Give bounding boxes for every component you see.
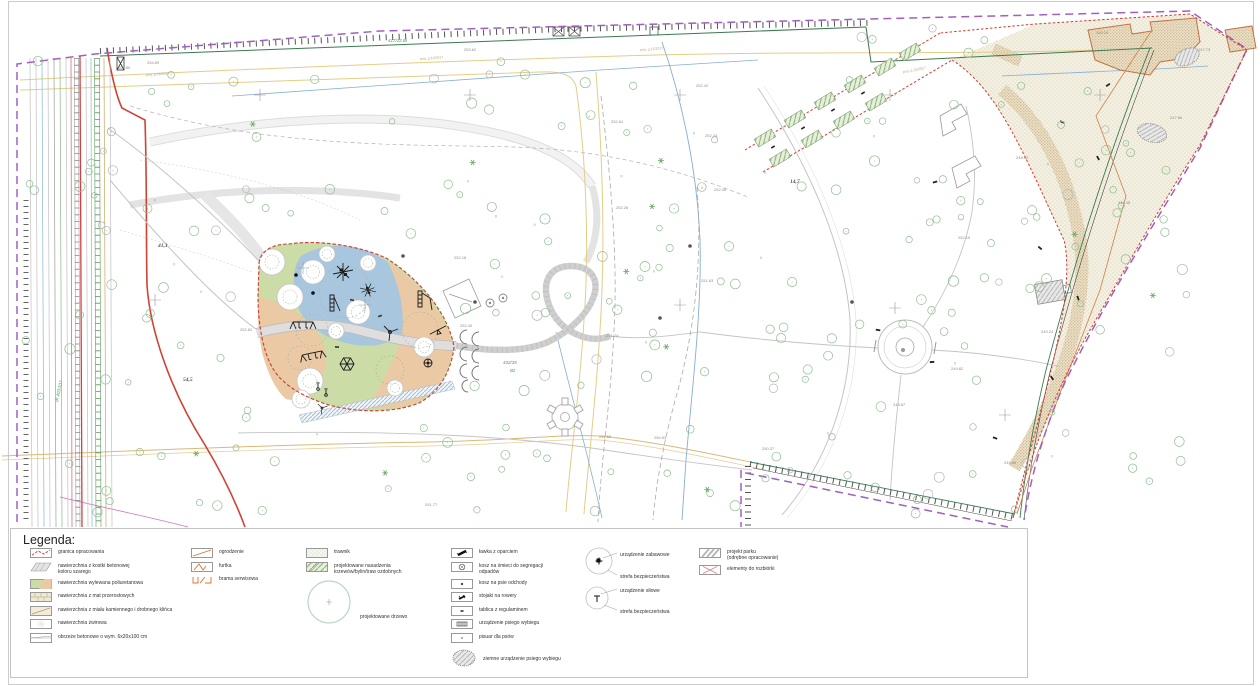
existing-wide-paths — [130, 119, 597, 262]
svg-text:II: II — [316, 431, 318, 436]
svg-text:249.86: 249.86 — [1004, 460, 1017, 465]
svg-text:II: II — [701, 185, 703, 190]
svg-text:proj. g 12/2017: proj. g 12/2017 — [420, 55, 444, 61]
svg-text:II: II — [1051, 454, 1053, 459]
svg-text:II: II — [173, 262, 175, 267]
svg-text:II: II — [200, 289, 202, 294]
svg-text:II: II — [534, 222, 536, 227]
legend-item-ground-dog-equipment: ziemne urządzenie psiego wybiegu — [451, 648, 561, 668]
svg-text:II: II — [1047, 162, 1049, 167]
svg-text:252.24: 252.24 — [705, 133, 718, 138]
svg-text:252.42: 252.42 — [696, 83, 709, 88]
svg-text:II: II — [827, 431, 829, 436]
lawn-swatch — [306, 548, 328, 558]
svg-text:251.50: 251.50 — [599, 434, 612, 439]
legend-column-misc: projekt parku(odrębne opracowanie) eleme… — [699, 548, 778, 579]
svg-text:248.82: 248.82 — [1016, 155, 1029, 160]
svg-text:417/22 Bi: 417/22 Bi — [388, 38, 408, 43]
svg-text:II: II — [501, 274, 503, 279]
legend-column-surfaces: granica opracowania nawierzchnia z kostk… — [30, 548, 172, 646]
legend-item-gate: furtka — [191, 562, 258, 572]
svg-text:250.37: 250.37 — [762, 446, 775, 451]
svg-text:proj. g 12/2017: proj. g 12/2017 — [146, 71, 170, 77]
grass-mats-swatch — [30, 592, 52, 602]
legend-item-stone-dust: nawierzchnia z miału kamiennego i drobne… — [30, 606, 172, 616]
dog-run-area — [952, 14, 1247, 518]
shrub-planting-swatch — [306, 562, 328, 572]
bench-icon — [451, 548, 473, 558]
svg-text:252.06: 252.06 — [714, 187, 727, 192]
svg-text:251.77: 251.77 — [425, 502, 438, 507]
dog-waste-bin-icon — [451, 579, 473, 589]
legend-item-dog-run-equipment: urządzenie psiego wybiegu — [451, 619, 561, 629]
legend-title: Legenda: — [23, 533, 75, 547]
plaza-monument — [547, 398, 583, 436]
svg-text:252.82: 252.82 — [240, 327, 253, 332]
svg-text:proj. g 12/2017: proj. g 12/2017 — [902, 66, 926, 74]
gray-donut-trees — [486, 294, 507, 307]
amphitheater-benches — [460, 330, 479, 392]
stone-dust-swatch — [30, 606, 52, 616]
pavers-swatch — [30, 562, 52, 572]
svg-text:54,5: 54,5 — [183, 377, 193, 383]
rules-board-icon — [451, 606, 473, 616]
legend-item-recycling-bin: kosz na śmieci do segregacjiodpadów — [451, 562, 561, 576]
svg-text:II: II — [693, 130, 695, 135]
svg-text:252.19: 252.19 — [958, 235, 971, 240]
legend-item-service-gate: brama serwisowa — [191, 575, 258, 585]
legend-column-fencing: ogrodzenie furtka brama serwisowa — [191, 548, 258, 589]
svg-text:249.87: 249.87 — [893, 402, 906, 407]
legend-item-gravel: nawierzchnia żwirowa — [30, 619, 172, 629]
svg-text:II: II — [954, 361, 956, 366]
ground-dog-equipment-icon — [451, 648, 477, 668]
svg-text:249.82: 249.82 — [951, 366, 964, 371]
play-equipment-label: urządzenie zabawowe — [620, 552, 670, 558]
gravel-swatch — [30, 619, 52, 629]
svg-text:II: II — [760, 255, 762, 260]
legend-item-dog-urinal: pisuar dla psów — [451, 633, 561, 643]
svg-text:II: II — [588, 114, 590, 119]
legend-item-grass-mats: nawierzchnia z mat przerostowych — [30, 592, 172, 602]
svg-text:proj. g 12/2017: proj. g 12/2017 — [640, 46, 664, 52]
park-project-swatch — [699, 548, 721, 558]
boundary-swatch — [30, 548, 52, 558]
edging-swatch — [30, 633, 52, 643]
legend-item-proposed-tree: projektowane drzewo — [306, 579, 407, 625]
svg-text:249.24: 249.24 — [1041, 329, 1054, 334]
svg-text:41,1: 41,1 — [157, 243, 168, 249]
fitness-equipment-label: urządzenie siłowe — [620, 588, 660, 594]
legend-panel: Legenda: granica opracowania nawierzchni… — [10, 528, 1028, 678]
svg-text:252.40: 252.40 — [460, 323, 473, 328]
legend-item-park-project: projekt parku(odrębne opracowanie) — [699, 548, 778, 562]
gate-swatch — [191, 562, 213, 572]
playground — [257, 243, 456, 423]
play-safety-zone-label: strefa bezpieczeństwa — [620, 574, 670, 580]
svg-text:Bz: Bz — [510, 368, 516, 373]
legend-column-greenery: trawnik projektowane nasadzeniakrzewów/b… — [306, 548, 407, 629]
legend-item-boundary: granica opracowania — [30, 548, 172, 558]
dog-urinal-icon — [451, 633, 473, 643]
svg-text:II: II — [620, 174, 622, 179]
legend-item-rules-board: tablica z regulaminem — [451, 606, 561, 616]
legend-item-concrete-pavers: nawierzchnia z kostki betonowejkoloru sz… — [30, 562, 172, 576]
polyurethane-swatch — [30, 579, 52, 589]
svg-text:250.93: 250.93 — [654, 435, 667, 440]
plaza-fountain — [874, 320, 936, 374]
dog-run-equipment-icon — [451, 619, 473, 629]
legend-item-bike-racks: stojaki na rowery — [451, 592, 561, 602]
svg-text:251.74: 251.74 — [606, 333, 619, 338]
svg-text:II: II — [154, 197, 156, 202]
svg-text:252.18: 252.18 — [454, 255, 467, 260]
svg-text:254.80: 254.80 — [118, 65, 131, 70]
svg-text:252.26: 252.26 — [616, 205, 629, 210]
plan-sheet: IIIIIIIIIIIIIIIIIIIIIIIIIIIIIIIIIIIIIIII… — [0, 0, 1260, 686]
fitness-safety-zone-label: strefa bezpieczeństwa — [620, 609, 670, 615]
svg-text:247.86: 247.86 — [1170, 115, 1183, 120]
svg-text:247.73: 247.73 — [1198, 47, 1211, 52]
svg-text:253.62: 253.62 — [464, 47, 477, 52]
legend-column-furniture: ławka z oparciem kosz na śmieci do segre… — [451, 548, 561, 671]
svg-text:II: II — [645, 340, 647, 345]
svg-text:254.89: 254.89 — [147, 60, 160, 65]
svg-text:II: II — [495, 214, 497, 219]
legend-item-polyurethane: nawierzchnia wylewana poliuretanowa — [30, 579, 172, 589]
bike-racks-icon — [451, 592, 473, 602]
svg-text:II: II — [467, 179, 469, 184]
legend-item-bench: ławka z oparciem — [451, 548, 561, 558]
legend-item-concrete-edging: obrzeże betonowe o wym. 6x20x100 cm — [30, 633, 172, 643]
legend-item-dog-waste-bin: kosz na psie odchody — [451, 579, 561, 589]
legend-item-shrub-planting: projektowane nasadzeniakrzewów/bylin/tra… — [306, 562, 407, 576]
svg-text:251.63: 251.63 — [701, 278, 714, 283]
legend-item-fence: ogrodzenie — [191, 548, 258, 558]
svg-text:252.64: 252.64 — [611, 119, 624, 124]
recycling-bin-icon — [451, 562, 473, 572]
fence-swatch — [191, 548, 213, 558]
svg-text:II: II — [473, 358, 475, 363]
legend-item-lawn: trawnik — [306, 548, 407, 558]
svg-text:II: II — [653, 269, 655, 274]
planting-beds — [754, 43, 921, 167]
svg-text:248.48: 248.48 — [1118, 200, 1131, 205]
svg-text:248.24: 248.24 — [1096, 30, 1109, 35]
svg-text:432/35: 432/35 — [503, 360, 517, 365]
proposed-tree-swatch — [306, 579, 354, 625]
svg-text:II: II — [873, 133, 875, 138]
legend-item-demolition: elementy do rozbiórki — [699, 565, 778, 575]
demolition-swatch — [699, 565, 721, 575]
svg-text:14,7: 14,7 — [790, 179, 800, 185]
svg-text:II: II — [764, 170, 766, 175]
small-buildings — [117, 27, 981, 188]
service-gate-swatch — [191, 575, 213, 585]
